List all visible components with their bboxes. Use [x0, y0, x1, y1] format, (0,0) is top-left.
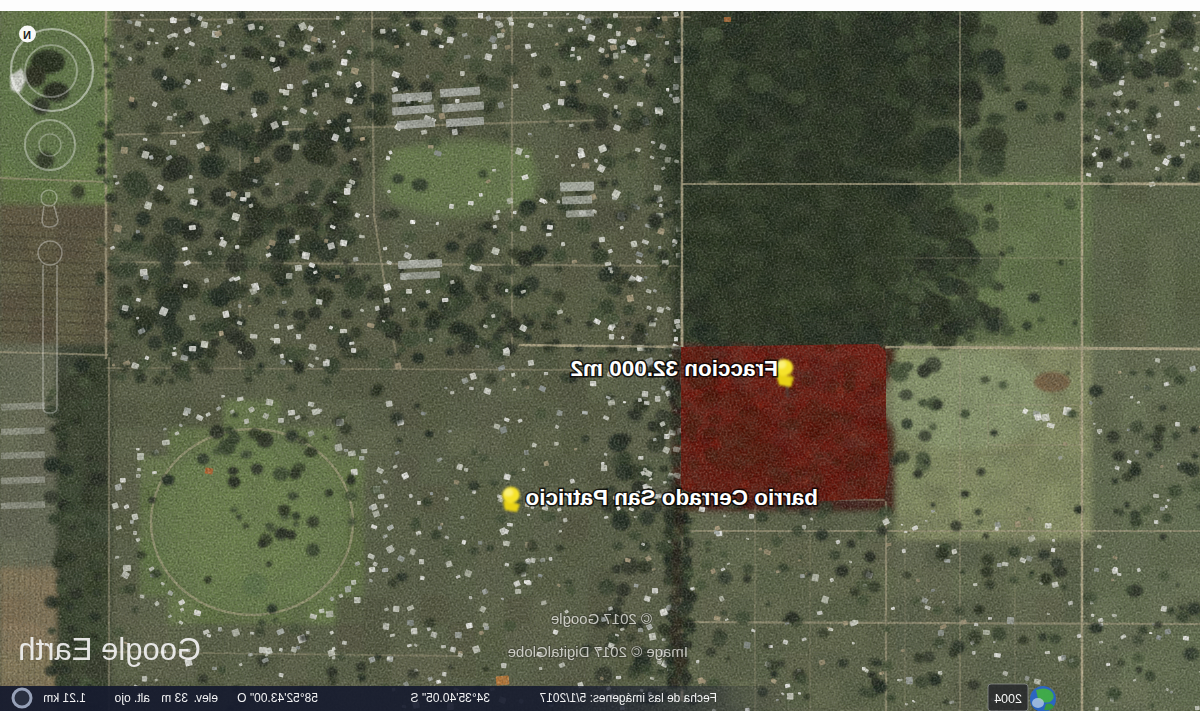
svg-text:58°52'43.00" O: 58°52'43.00" O [237, 691, 318, 705]
svg-text:barrio Cerrado San Patricio: barrio Cerrado San Patricio [525, 485, 818, 510]
svg-text:alt. ojo: alt. ojo [114, 691, 150, 705]
svg-text:2004: 2004 [994, 692, 1022, 706]
svg-text:Fecha de las imágenes: 5/1/201: Fecha de las imágenes: 5/1/2017 [539, 691, 717, 705]
svg-text:33 m: 33 m [161, 691, 188, 705]
svg-text:Google Earth: Google Earth [18, 632, 201, 667]
svg-text:1.21 km: 1.21 km [43, 691, 86, 705]
svg-text:© 2017 Google: © 2017 Google [551, 610, 652, 627]
svg-text:N: N [23, 29, 31, 41]
svg-text:Fraccion 32.000 m2: Fraccion 32.000 m2 [570, 356, 778, 381]
svg-text:Image © 2017 DigitalGlobe: Image © 2017 DigitalGlobe [508, 643, 688, 660]
svg-text:elev.: elev. [194, 691, 218, 705]
svg-text:34°35'40.05" S: 34°35'40.05" S [411, 691, 490, 705]
